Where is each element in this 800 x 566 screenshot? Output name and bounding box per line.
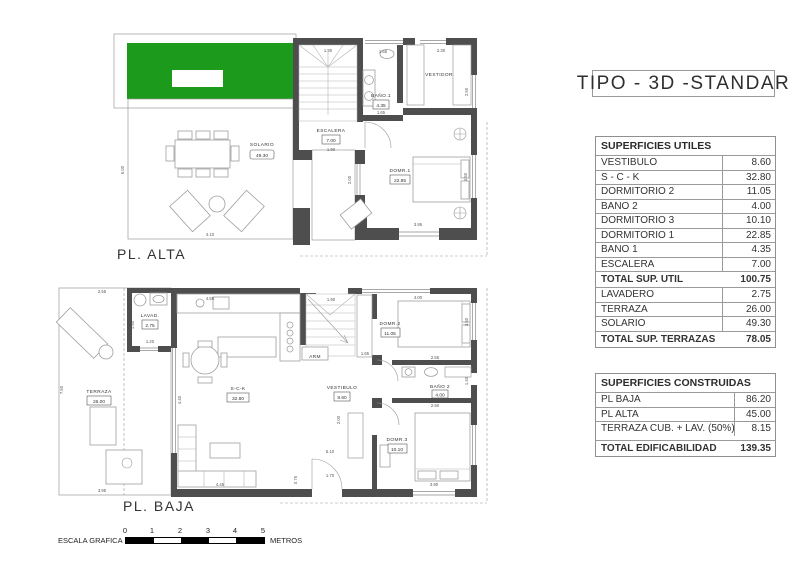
table-row: TERRAZA CUB. + LAV. (50%)8.15: [596, 421, 775, 436]
row-label: S - C - K: [596, 172, 722, 183]
dim-hall-b: 1.70: [326, 473, 335, 478]
room-label-bano1: BAÑO.1: [371, 92, 391, 99]
row-label: TOTAL SUP. UTIL: [596, 274, 723, 285]
row-value: 11.05: [722, 185, 775, 199]
table-row: TOTAL EDIFICABILIDAD139.35: [596, 440, 775, 456]
superficies-construidas-table: SUPERFICIES CONSTRUIDAS PL BAJA86.20PL A…: [595, 373, 776, 457]
row-label: TERRAZA: [596, 304, 722, 315]
scale-tick-5: 5: [258, 526, 268, 535]
dorm2-wardrobe: [357, 295, 372, 357]
dim-dorm1-left: 2.00: [347, 175, 352, 184]
scale-tick-2: 2: [175, 526, 185, 535]
room-area-sck: 32.80: [232, 396, 244, 402]
dim-kitchen-top: 4.55: [206, 296, 215, 301]
room-label-vestibulo: VESTIBULO: [327, 385, 358, 391]
bedroom3-furniture: [348, 403, 470, 481]
row-label: TOTAL SUP. TERRAZAS: [596, 334, 723, 345]
superficies-utiles-table: SUPERFICIES UTILES VESTIBULO8.60S - C - …: [595, 136, 776, 348]
row-label: DORMITORIO 2: [596, 186, 722, 197]
room-area-solario: 49.30: [256, 153, 268, 159]
dim-terraza-top: 2.55: [98, 289, 107, 294]
room-label-sck: S-C-K: [230, 386, 245, 392]
row-label: PL ALTA: [596, 409, 734, 420]
dim-terraza-bottom: 3.95: [98, 488, 107, 493]
row-label: BAÑO 1: [596, 244, 722, 255]
lavadero-room: LAVAD. 2.75 1.50 1.20: [127, 288, 171, 352]
row-value: 49.30: [722, 317, 775, 331]
room-area-dorm1: 22.85: [394, 178, 406, 184]
scale-label: ESCALA GRAFICA :: [58, 536, 126, 545]
table-row: DORMITORIO 211.05: [596, 184, 775, 199]
table-row: TOTAL SUP. TERRAZAS78.05: [596, 331, 775, 347]
sheet-title-box: TIPO - 3D -STANDAR: [592, 70, 775, 97]
dim-solario-bottom: 4.10: [206, 232, 215, 237]
row-label: LAVADERO: [596, 289, 722, 300]
table-row: BAÑO 14.35: [596, 242, 775, 257]
row-value: 4.35: [722, 243, 775, 257]
dim-terraza-left: 7.50: [59, 385, 64, 394]
dim-dorm2-door: 1.65: [361, 351, 370, 356]
stairs-upper: [299, 45, 357, 121]
row-value: 22.85: [722, 229, 775, 243]
scale-unit: METROS: [270, 536, 302, 545]
row-label: BAÑO 2: [596, 201, 722, 212]
row-value: 45.00: [734, 408, 775, 422]
dim-bano2-bottom: 2.50: [431, 403, 440, 408]
dim-hall-c: 2.00: [336, 415, 341, 424]
table-row: DORMITORIO 310.10: [596, 213, 775, 228]
dim-stair-bottom: 1.90: [327, 147, 336, 152]
row-value: 32.80: [722, 171, 775, 185]
row-value: 2.75: [722, 288, 775, 302]
table-row: SOLARIO49.30: [596, 316, 775, 331]
table-row: PL BAJA86.20: [596, 392, 775, 407]
sun-loungers: [170, 190, 265, 231]
scale-tick-3: 3: [203, 526, 213, 535]
row-value: 8.60: [722, 156, 775, 170]
room-label-dorm1: DOMR.1: [389, 168, 410, 174]
dim-vestidor-top: 2.30: [437, 48, 446, 53]
table-row: ESCALERA7.00: [596, 257, 775, 272]
dim-solario-left: 6.00: [120, 165, 125, 174]
row-label: DORMITORIO 3: [596, 215, 722, 226]
room-area-escalera: 7.00: [326, 138, 336, 144]
scale-bar: [125, 537, 265, 544]
plan-alta-title: PL. ALTA: [117, 246, 186, 262]
room-area-bano2: 4.00: [435, 393, 445, 399]
dim-vestidor-right: 2.50: [464, 87, 469, 96]
room-label-arm: ARM: [309, 354, 321, 360]
sheet-title: TIPO - 3D -STANDAR: [577, 73, 791, 95]
dining-table: [166, 131, 239, 177]
table-row: TERRAZA26.00: [596, 302, 775, 317]
row-label: PL BAJA: [596, 394, 734, 405]
plan-baja-drawing: TERRAZA 26.00 2.55 7.50 3.95 LAVAD. 2.75…: [50, 285, 490, 515]
row-value: 78.05: [723, 332, 775, 347]
table-row: PL ALTA45.00: [596, 407, 775, 422]
roof-garden: [114, 34, 296, 108]
table-row: LAVADERO2.75: [596, 287, 775, 302]
dim-dorm2-right: 3.50: [464, 317, 469, 326]
row-label: SOLARIO: [596, 318, 722, 329]
table-row: BAÑO 24.00: [596, 199, 775, 214]
scale-tick-4: 4: [230, 526, 240, 535]
table-row: DORMITORIO 122.85: [596, 228, 775, 243]
dim-sck-bottom: 4.45: [216, 482, 225, 487]
dim-dorm1-window: 3.95: [414, 222, 423, 227]
row-value: 139.35: [735, 441, 775, 456]
room-area-lavad: 2.75: [145, 323, 155, 329]
table-row: VESTIBULO8.60: [596, 155, 775, 170]
graphic-scale: ESCALA GRAFICA : 0 1 2 3 4 5 METROS: [58, 525, 318, 547]
dim-lavad-bottom: 1.20: [146, 339, 155, 344]
room-area-dorm2: 11.05: [384, 331, 396, 337]
row-label: VESTIBULO: [596, 157, 722, 168]
dim-dorm2-top: 4.00: [414, 295, 423, 300]
row-label: TOTAL EDIFICABILIDAD: [596, 443, 735, 454]
row-value: 26.00: [722, 303, 775, 317]
room-label-lavad: LAVAD.: [141, 313, 160, 319]
dim-entry: 0.75: [293, 475, 298, 484]
table-header-utiles: SUPERFICIES UTILES: [596, 137, 775, 155]
row-label: TERRAZA CUB. + LAV. (50%): [596, 423, 734, 434]
row-label: ESCALERA: [596, 259, 722, 270]
skylight: [172, 70, 223, 87]
room-label-dorm3: DOMR.3: [386, 437, 407, 443]
room-label-vestidor: VESTIDOR: [425, 72, 453, 78]
dim-bano-top: 1.65: [379, 49, 388, 54]
room-label-bano2: BAÑO 2: [430, 383, 450, 390]
dim-hall-a: 5.10: [326, 449, 335, 454]
room-label-solario: SOLARIO: [250, 142, 274, 148]
table-row: TOTAL SUP. UTIL100.75: [596, 271, 775, 287]
row-value: 7.00: [722, 258, 775, 272]
dim-stair-lower-top: 1.90: [327, 297, 336, 302]
dim-sck-left: 4.40: [177, 395, 182, 404]
room-area-dorm3: 10.10: [391, 447, 403, 453]
bedroom2-furniture: [377, 301, 470, 381]
dim-dorm1-right: 4.50: [463, 172, 468, 181]
dim-lavad-left: 1.50: [130, 320, 135, 329]
stairs-lower: [302, 294, 355, 360]
room-area-vestibulo: 8.60: [337, 395, 347, 401]
row-value: 10.10: [722, 214, 775, 228]
bathroom2-fixtures: [402, 367, 471, 377]
room-label-dorm2: DOMR.2: [379, 321, 400, 327]
dim-bano2-top: 2.55: [431, 355, 440, 360]
dim-stair-top: 1.90: [324, 48, 333, 53]
scale-tick-0: 0: [120, 526, 130, 535]
plan-alta-drawing: SOLARIO 49.30 6.00 4.10: [50, 12, 490, 264]
plan-sheet: SOLARIO 49.30 6.00 4.10: [0, 0, 800, 566]
dim-bano-bottom: 1.65: [377, 110, 386, 115]
dim-bano2-right: 1.40: [464, 376, 469, 385]
room-area-bano1: 4.35: [376, 103, 386, 109]
row-value: 100.75: [723, 272, 775, 287]
scale-tick-1: 1: [147, 526, 157, 535]
row-value: 86.20: [734, 393, 775, 407]
row-value: 8.15: [734, 422, 775, 436]
room-label-terraza: TERRAZA: [86, 389, 112, 395]
table-row: S - C - K32.80: [596, 170, 775, 185]
dim-dorm3-bottom: 3.90: [430, 482, 439, 487]
row-label: DORMITORIO 1: [596, 230, 722, 241]
table-header-construidas: SUPERFICIES CONSTRUIDAS: [596, 374, 775, 392]
room-label-escalera: ESCALERA: [317, 128, 346, 134]
plan-baja-title: PL. BAJA: [123, 498, 195, 514]
room-area-terraza: 26.00: [93, 399, 105, 405]
row-value: 4.00: [722, 200, 775, 214]
